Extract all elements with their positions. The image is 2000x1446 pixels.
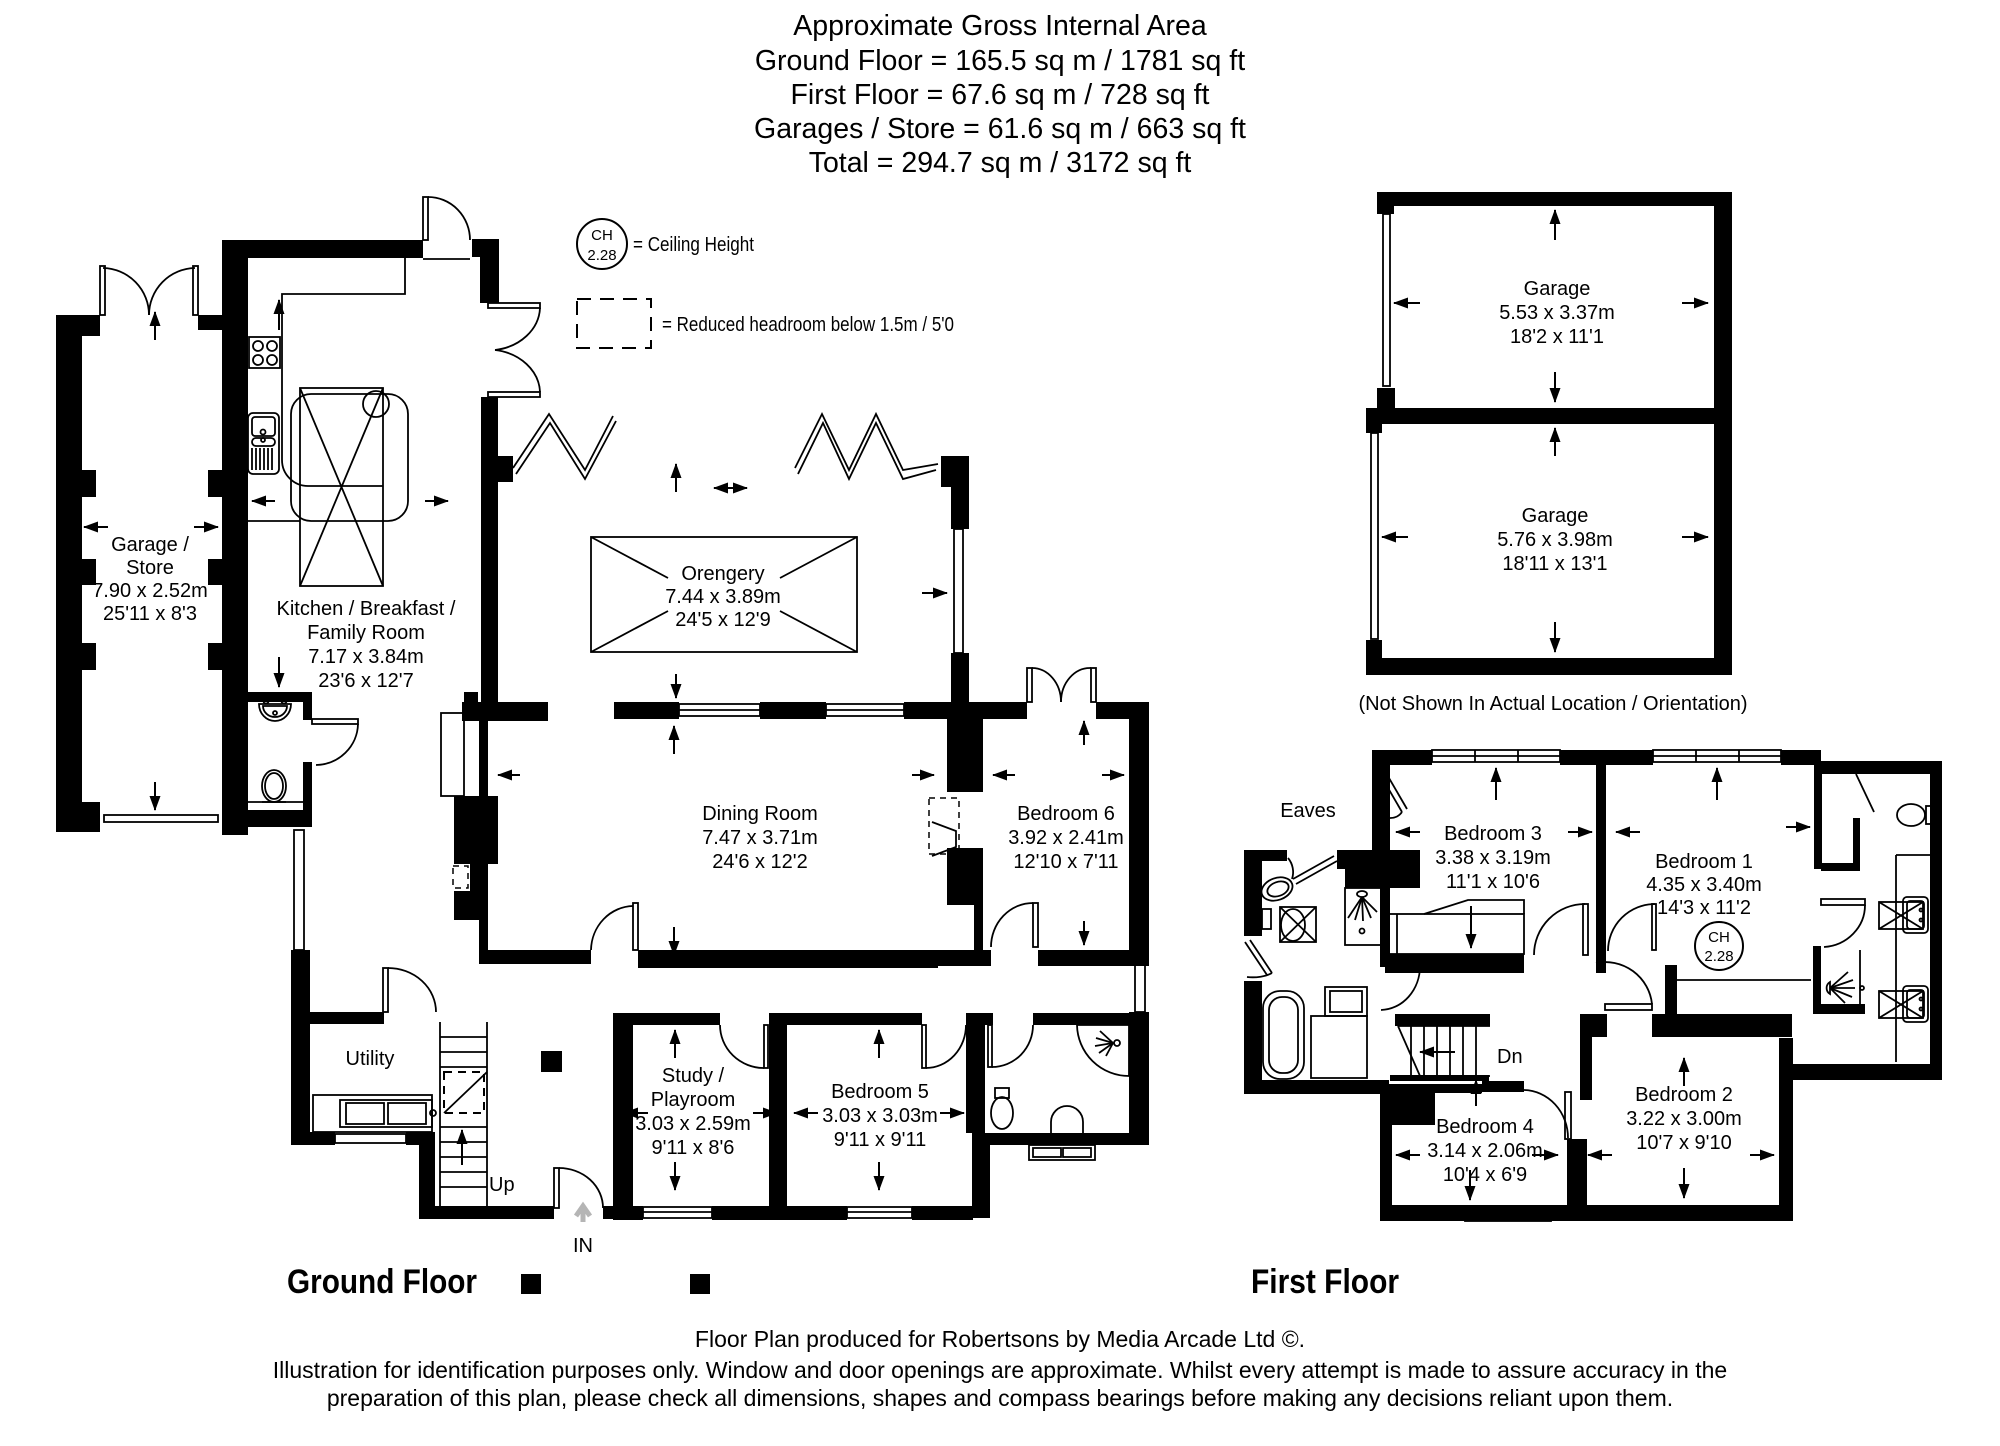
svg-text:4.35 x 3.40m: 4.35 x 3.40m [1646, 874, 1762, 896]
svg-text:Illustration for identificatio: Illustration for identification purposes… [273, 1357, 1727, 1383]
svg-text:Garages / Store = 61.6 sq m /: Garages / Store = 61.6 sq m / 663 sq ft [754, 113, 1246, 145]
svg-text:Store: Store [126, 557, 174, 579]
svg-text:Approximate Gross Internal Are: Approximate Gross Internal Area [793, 10, 1207, 42]
svg-text:23'6 x 12'7: 23'6 x 12'7 [318, 670, 414, 692]
svg-text:3.03 x 2.59m: 3.03 x 2.59m [635, 1113, 751, 1135]
svg-text:14'3 x 11'2: 14'3 x 11'2 [1657, 897, 1751, 919]
svg-text:5.76 x 3.98m: 5.76 x 3.98m [1497, 529, 1613, 551]
svg-text:Bedroom 6: Bedroom 6 [1017, 803, 1115, 825]
svg-text:Dining Room: Dining Room [702, 803, 818, 825]
svg-text:9'11 x 8'6: 9'11 x 8'6 [652, 1137, 735, 1159]
svg-text:10'4 x 6'9: 10'4 x 6'9 [1443, 1164, 1527, 1186]
svg-text:Floor Plan produced for Robert: Floor Plan produced for Robertsons by Me… [695, 1326, 1305, 1352]
svg-text:Dn: Dn [1497, 1046, 1523, 1068]
svg-text:Utility: Utility [346, 1048, 395, 1070]
svg-text:7.44 x 3.89m: 7.44 x 3.89m [665, 586, 781, 608]
svg-text:3.14 x 2.06m: 3.14 x 2.06m [1427, 1140, 1543, 1162]
svg-text:Total = 294.7 sq m / 3172 sq f: Total = 294.7 sq m / 3172 sq ft [809, 147, 1192, 179]
svg-text:10'7 x 9'10: 10'7 x 9'10 [1636, 1132, 1732, 1154]
svg-text:Up: Up [489, 1174, 515, 1196]
svg-text:CH: CH [591, 227, 613, 244]
svg-text:11'1 x 10'6: 11'1 x 10'6 [1446, 871, 1540, 893]
svg-text:2.28: 2.28 [587, 247, 616, 264]
svg-text:preparation of this plan, plea: preparation of this plan, please check a… [327, 1385, 1673, 1411]
svg-text:IN: IN [573, 1235, 593, 1257]
svg-text:Study /: Study / [662, 1065, 725, 1087]
svg-text:9'11 x 9'11: 9'11 x 9'11 [834, 1129, 927, 1151]
svg-text:Orengery: Orengery [681, 563, 764, 585]
svg-text:18'2 x 11'1: 18'2 x 11'1 [1510, 326, 1604, 348]
svg-text:First Floor: First Floor [1251, 1263, 1399, 1301]
svg-text:18'11 x 13'1: 18'11 x 13'1 [1502, 553, 1607, 575]
svg-text:Kitchen / Breakfast /: Kitchen / Breakfast / [277, 598, 456, 620]
svg-text:12'10 x 7'11: 12'10 x 7'11 [1013, 851, 1118, 873]
svg-text:Garage: Garage [1524, 278, 1591, 300]
svg-text:5.53 x 3.37m: 5.53 x 3.37m [1499, 302, 1615, 324]
svg-text:Bedroom 1: Bedroom 1 [1655, 851, 1753, 873]
svg-text:3.03 x 3.03m: 3.03 x 3.03m [822, 1105, 938, 1127]
svg-text:= Reduced headroom below 1.5m: = Reduced headroom below 1.5m / 5'0 [662, 314, 954, 336]
svg-text:CH: CH [1708, 929, 1730, 946]
svg-text:3.92 x 2.41m: 3.92 x 2.41m [1008, 827, 1124, 849]
svg-text:Bedroom 2: Bedroom 2 [1635, 1084, 1733, 1106]
svg-text:Ground Floor = 165.5 sq m / 17: Ground Floor = 165.5 sq m / 1781 sq ft [755, 45, 1245, 77]
svg-text:25'11 x 8'3: 25'11 x 8'3 [103, 603, 197, 625]
svg-text:Bedroom 3: Bedroom 3 [1444, 823, 1542, 845]
svg-text:= Ceiling Height: = Ceiling Height [633, 234, 754, 256]
svg-text:First Floor = 67.6 sq m / 728: First Floor = 67.6 sq m / 728 sq ft [791, 79, 1210, 111]
svg-text:3.22 x 3.00m: 3.22 x 3.00m [1626, 1108, 1742, 1130]
svg-text:3.38 x 3.19m: 3.38 x 3.19m [1435, 847, 1551, 869]
svg-text:Bedroom 5: Bedroom 5 [831, 1081, 929, 1103]
svg-text:Ground Floor: Ground Floor [287, 1263, 477, 1301]
svg-text:Playroom: Playroom [651, 1089, 735, 1111]
svg-text:Bedroom 4: Bedroom 4 [1436, 1116, 1534, 1138]
svg-text:7.47 x 3.71m: 7.47 x 3.71m [702, 827, 818, 849]
svg-text:7.17 x 3.84m: 7.17 x 3.84m [308, 646, 424, 668]
svg-text:Garage: Garage [1522, 505, 1589, 527]
svg-text:7.90 x 2.52m: 7.90 x 2.52m [92, 580, 208, 602]
svg-text:24'5 x 12'9: 24'5 x 12'9 [675, 609, 771, 631]
svg-text:(Not Shown In Actual Location: (Not Shown In Actual Location / Orientat… [1358, 693, 1747, 715]
svg-text:24'6 x 12'2: 24'6 x 12'2 [712, 851, 808, 873]
svg-text:2.28: 2.28 [1704, 948, 1733, 965]
svg-text:Family Room: Family Room [307, 622, 425, 644]
svg-text:Garage /: Garage / [111, 534, 189, 556]
svg-text:Eaves: Eaves [1280, 800, 1336, 822]
